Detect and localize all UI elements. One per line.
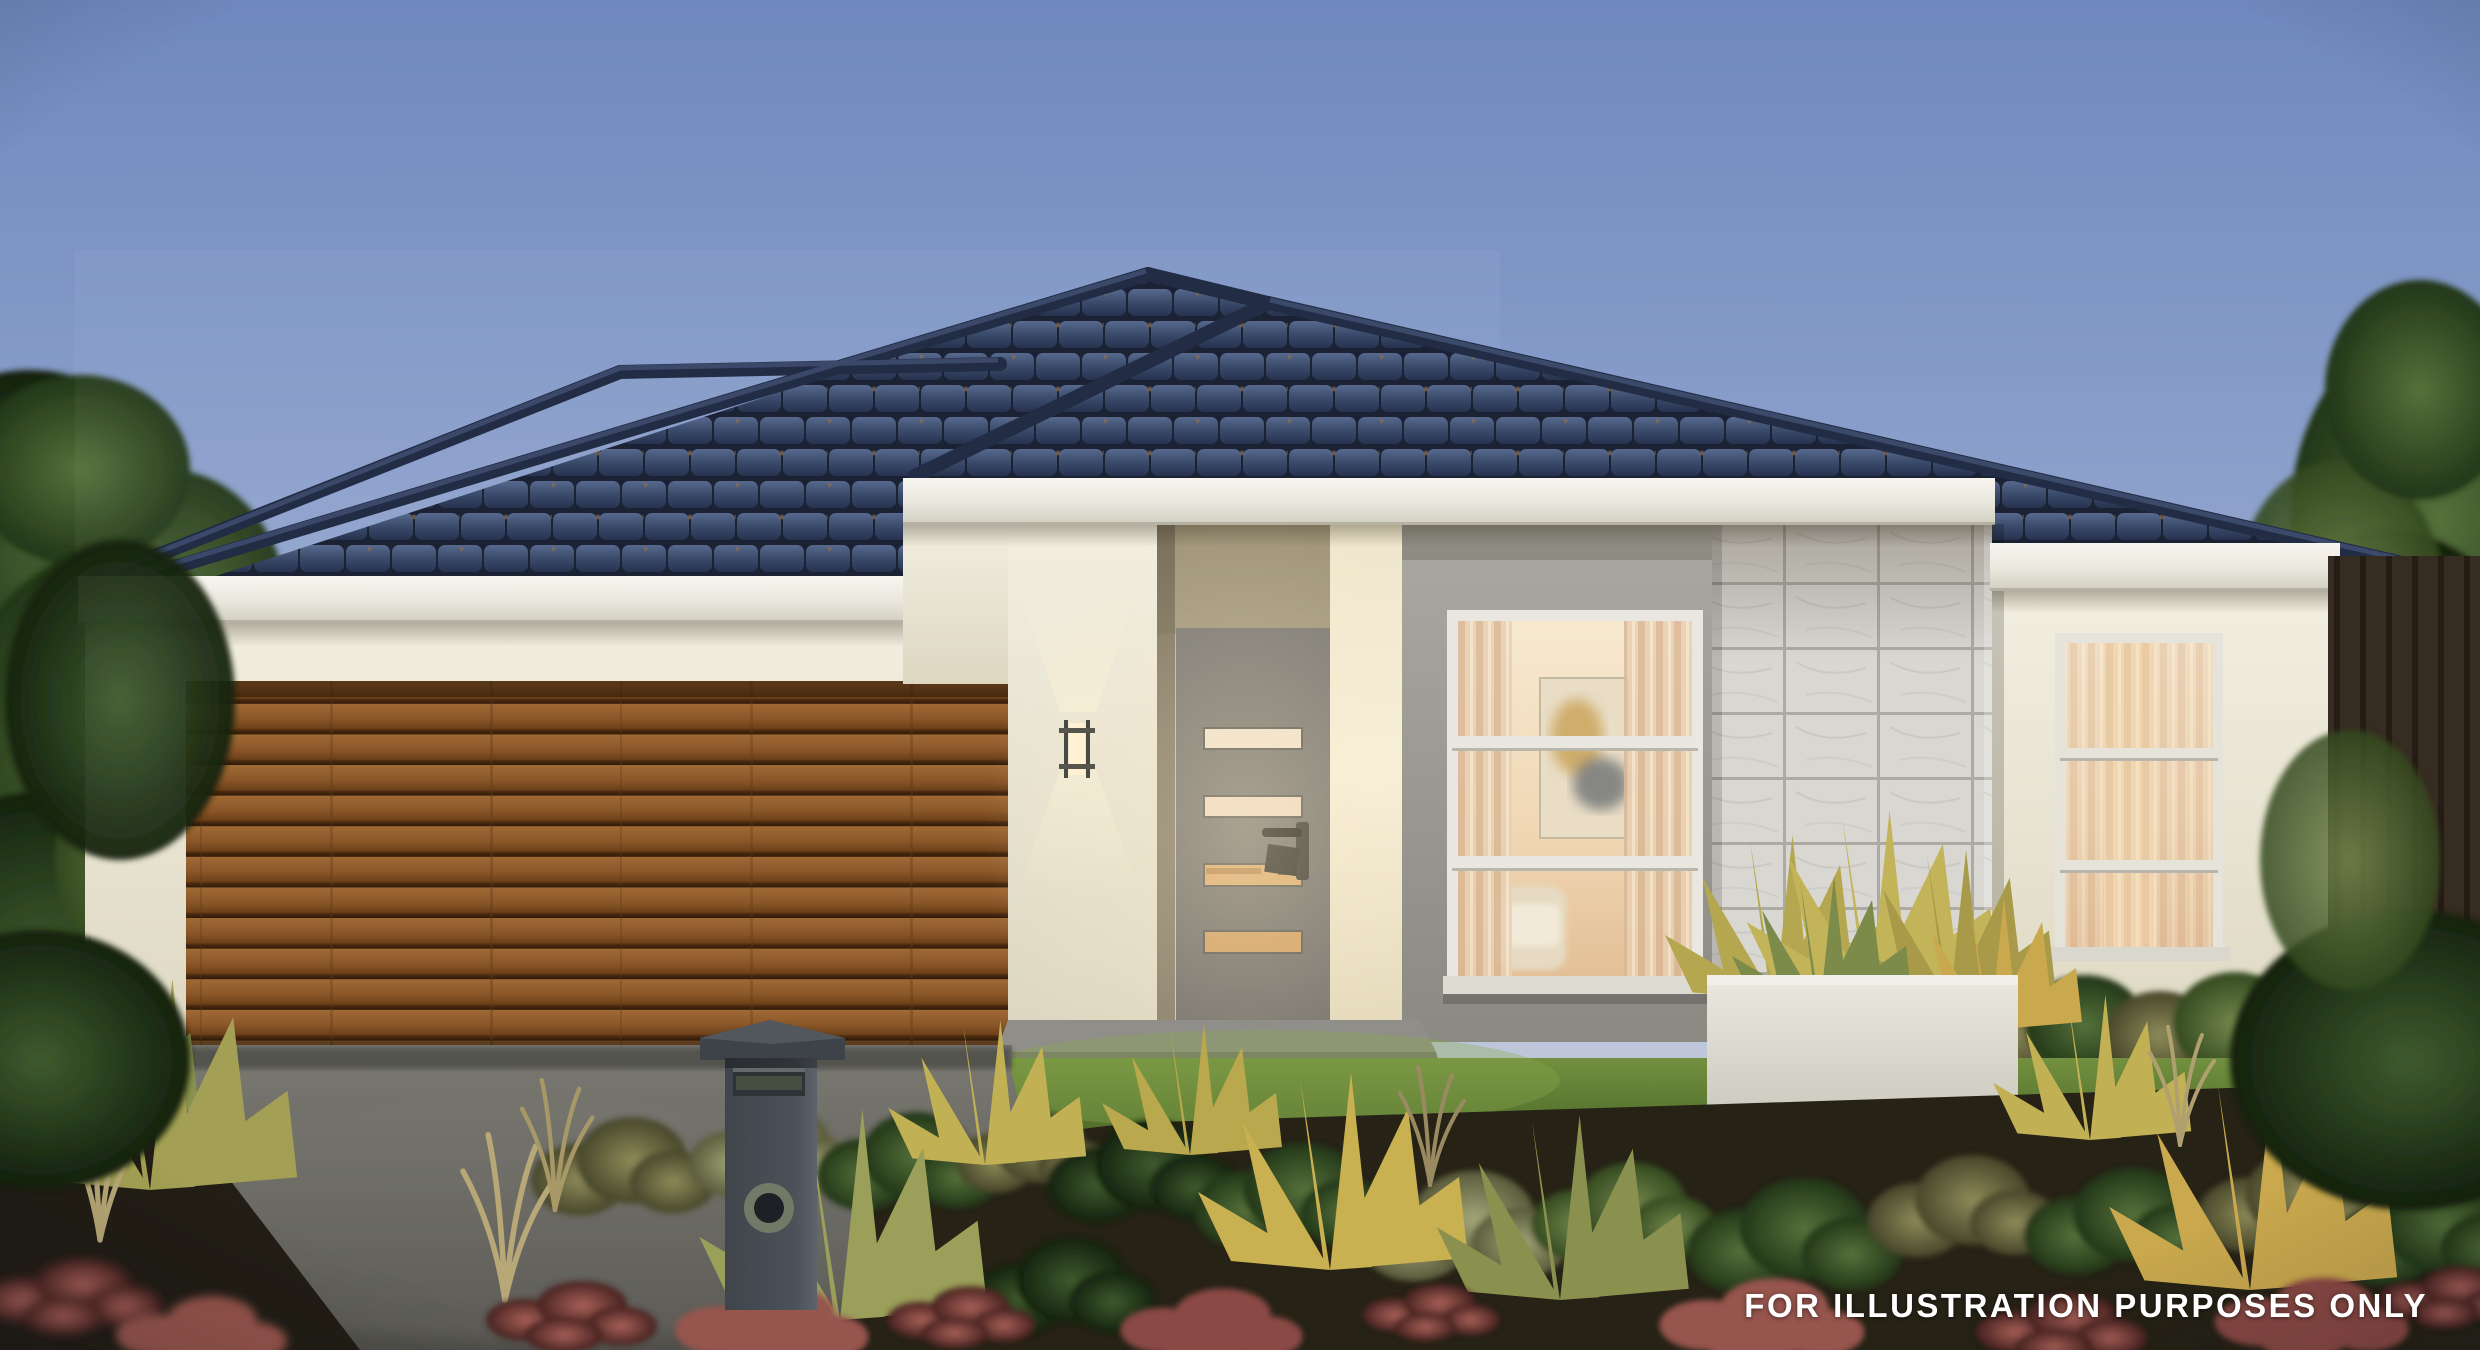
house-render-scene: FOR ILLUSTRATION PURPOSES ONLY [0, 0, 2480, 1350]
render-canvas [0, 0, 2480, 1350]
disclaimer-text: FOR ILLUSTRATION PURPOSES ONLY [1744, 1289, 2428, 1322]
vignette [0, 0, 2480, 1350]
